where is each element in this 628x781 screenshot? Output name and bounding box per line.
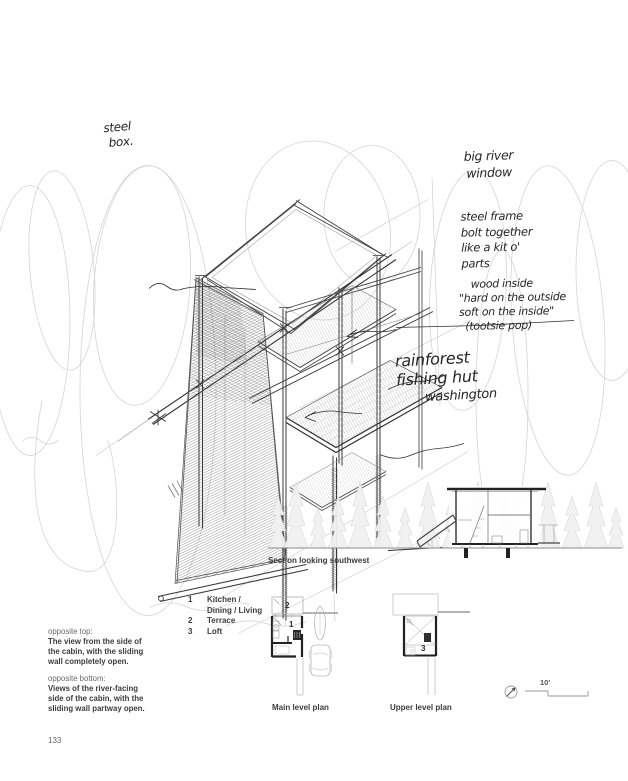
scale-bar (525, 691, 588, 696)
caption-line: sliding wall partway open. (48, 704, 158, 714)
north-arrow-icon (505, 686, 517, 698)
book-page: steel box. big river window steel frame … (0, 0, 628, 781)
legend-label: Kitchen / (207, 595, 241, 606)
legend-label: Terrace (207, 616, 235, 627)
annotation-steel-box: steel box. (103, 119, 134, 151)
legend-row: 3 Loft (188, 627, 262, 638)
caption-line: side of the cabin, with the (48, 694, 158, 704)
legend-row: 1 Kitchen / (188, 595, 262, 606)
section-and-plans (0, 455, 628, 781)
legend-row: Dining / Living (188, 606, 262, 617)
legend-num: 2 (188, 616, 207, 627)
main-plan-terrace-number: 2 (285, 601, 289, 610)
legend-label: Loft (207, 627, 222, 638)
caption-line: The view from the side of (48, 637, 158, 647)
scale-label: 10' (540, 678, 550, 687)
legend-num: 1 (188, 595, 207, 606)
caption-label: opposite top: (48, 627, 158, 637)
main-level-plan (272, 597, 338, 695)
legend-num: 3 (188, 627, 207, 638)
caption-line: the cabin, with the sliding (48, 647, 158, 657)
main-plan-caption: Main level plan (272, 703, 329, 712)
legend-label: Dining / Living (207, 606, 262, 617)
plan-legend: 1 Kitchen / Dining / Living 2 Terrace 3 … (188, 595, 262, 637)
section-caption: Section looking southwest (268, 556, 369, 565)
page-number: 133 (48, 736, 61, 745)
legend-row: 2 Terrace (188, 616, 262, 627)
legend-num (188, 606, 207, 617)
annotation-big-river-window: big river window (463, 146, 514, 182)
caption-line: Views of the river-facing (48, 684, 158, 694)
upper-plan-caption: Upper level plan (390, 703, 452, 712)
main-plan-room-number: 1 (289, 620, 293, 629)
annotation-wood-inside: wood inside "hard on the outside soft on… (459, 276, 567, 334)
opposite-captions: opposite top: The view from the side of … (48, 627, 158, 714)
annotation-steel-frame: steel frame bolt together like a kit o' … (460, 208, 532, 271)
upper-level-plan (393, 594, 470, 695)
caption-label: opposite bottom: (48, 674, 158, 684)
annotation-project-title: rainforest fishing hut washington (395, 346, 498, 408)
upper-plan-loft-number: 3 (421, 644, 425, 653)
caption-line: wall completely open. (48, 657, 158, 667)
tree-silhouettes (268, 482, 624, 548)
